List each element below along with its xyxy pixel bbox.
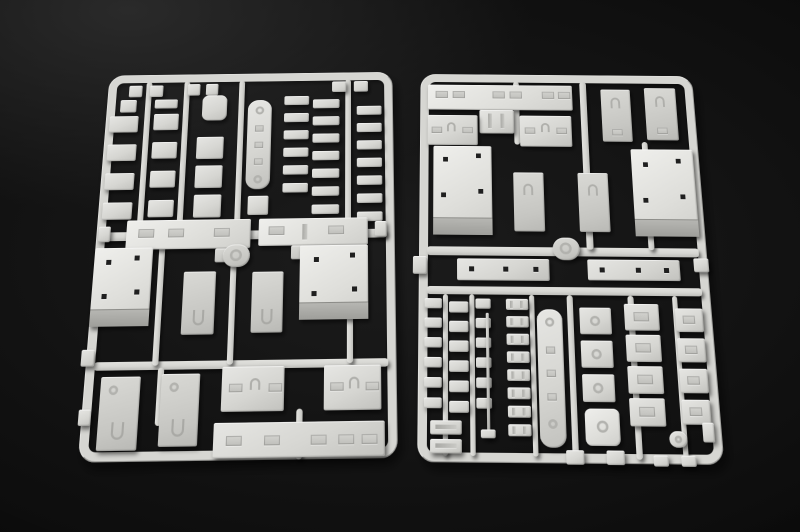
big-box-part	[299, 245, 368, 320]
part-detail-pad	[547, 370, 557, 378]
small-plate-part	[104, 173, 135, 190]
small-box-part	[247, 196, 268, 215]
part-detail-pad	[637, 375, 653, 385]
l-bracket-part	[120, 100, 137, 113]
comb-bracket	[313, 116, 340, 125]
tool-part	[155, 99, 178, 108]
small-bar-part	[284, 130, 309, 139]
part-detail-slot	[511, 371, 514, 378]
foot-clip	[653, 455, 669, 466]
part-detail-pad	[268, 226, 284, 235]
comb-bracket	[312, 133, 339, 143]
part-detail-arch	[588, 184, 598, 195]
sprue-left	[78, 72, 398, 463]
part-detail-pad	[268, 383, 282, 392]
lug-part	[506, 316, 529, 328]
ladder-strip-part	[245, 100, 272, 189]
small-bar-part	[283, 147, 308, 157]
dial-box-part	[581, 340, 614, 368]
part-detail-slot	[435, 443, 456, 448]
small-plate-part	[109, 116, 139, 133]
part-detail-slot	[521, 336, 524, 343]
lug-part	[506, 334, 529, 346]
part-side-face	[635, 219, 700, 237]
hanger-bracket	[449, 401, 469, 413]
big-box-part	[433, 146, 493, 235]
part-detail-hole	[311, 291, 316, 296]
part-detail-circ	[169, 382, 179, 392]
part-detail-slot	[488, 114, 492, 128]
part-detail-slot	[512, 408, 515, 416]
ladder-strip-part	[537, 309, 567, 448]
part-detail-pad	[254, 142, 263, 149]
part-detail-arch	[349, 377, 359, 389]
part-detail-pad	[338, 434, 354, 444]
hanger-bracket	[424, 377, 442, 388]
part-detail-hole	[533, 267, 538, 272]
top-clip	[206, 84, 219, 96]
part-detail-slot	[511, 353, 514, 360]
comb-bracket	[312, 168, 339, 178]
part-detail-hole	[600, 267, 605, 272]
hatch-panel-part	[577, 173, 610, 232]
plate-part	[428, 115, 478, 145]
lug-part	[506, 299, 529, 310]
part-detail-pad	[633, 312, 649, 321]
edge-clip	[413, 256, 427, 274]
part-detail-hole	[680, 194, 685, 199]
shackle-panel-part	[181, 271, 217, 335]
part-detail-pad	[254, 158, 263, 165]
foot-clip	[681, 456, 697, 467]
sprue-right	[417, 74, 724, 465]
comb-bracket	[357, 123, 382, 132]
comb-bracket	[312, 186, 340, 196]
hanger-bracket	[424, 357, 442, 368]
part-detail-hole	[106, 260, 111, 265]
photo-description: Photograph of two light-gray injection-m…	[0, 0, 1, 1]
edge-clip	[80, 350, 95, 367]
part-detail-hole	[443, 157, 448, 162]
part-detail-slot	[521, 354, 524, 361]
lug-part	[507, 369, 530, 381]
hatch-panel-part	[644, 88, 679, 140]
part-detail-hole	[476, 153, 481, 158]
part-detail-circ	[560, 242, 572, 254]
hook-part	[702, 423, 715, 443]
long-plate-part	[457, 258, 550, 281]
clamp-part	[430, 420, 462, 435]
part-detail-pad	[362, 434, 378, 444]
big-box-part	[89, 247, 153, 326]
part-detail-hole	[350, 253, 355, 258]
part-detail-slot	[522, 371, 525, 378]
pad-box-part	[681, 400, 711, 425]
part-detail-hole	[441, 192, 446, 197]
hatch-panel-part	[600, 90, 633, 142]
comb-bracket	[357, 106, 382, 115]
part-detail-pad	[311, 435, 327, 445]
part-detail-circ	[593, 383, 604, 394]
small-plate-part	[106, 144, 136, 161]
part-detail-pad	[492, 91, 504, 98]
comb-bracket	[313, 99, 340, 108]
part-detail-slot	[510, 318, 513, 325]
part-detail-hole	[503, 267, 508, 272]
lug-part	[508, 406, 531, 418]
part-detail-slot	[523, 408, 526, 416]
stepped-plate-part	[258, 217, 368, 246]
part-detail-slot	[510, 301, 513, 308]
top-clip	[354, 81, 368, 92]
part-detail-u	[261, 309, 273, 325]
small-plate-part	[153, 114, 179, 131]
part-detail-arch	[447, 122, 456, 131]
small-plate-part	[151, 142, 177, 159]
big-box-part	[630, 149, 699, 237]
hanger-bracket	[449, 380, 469, 392]
part-detail-hole	[134, 256, 139, 261]
comb-bracket	[311, 204, 339, 214]
part-detail-circ	[548, 419, 558, 429]
hanger-bracket	[449, 360, 469, 372]
part-detail-circ	[255, 106, 264, 114]
hanger-bracket	[449, 340, 469, 352]
hanger-bracket	[475, 298, 490, 308]
comb-bracket	[357, 158, 382, 168]
part-detail-circ	[230, 249, 242, 261]
part-detail-pad	[689, 407, 702, 416]
clamp-part	[430, 439, 462, 454]
sprue-runner	[345, 79, 351, 231]
part-detail-slot	[511, 336, 514, 343]
part-detail-hole	[478, 189, 483, 194]
hanger-bracket	[424, 397, 442, 408]
rounded-box-part	[584, 408, 621, 446]
part-detail-hole	[352, 286, 357, 291]
part-detail-pad	[226, 436, 242, 446]
part-detail-slot	[520, 318, 523, 325]
part-detail-pad	[612, 129, 623, 135]
part-detail-slot	[302, 224, 307, 240]
small-bar-part	[283, 165, 308, 175]
top-clip	[150, 85, 164, 97]
part-detail-hole	[134, 289, 139, 294]
part-detail-pad	[682, 316, 695, 324]
part-detail-hole	[636, 268, 641, 273]
part-detail-pad	[556, 128, 567, 134]
part-detail-pad	[229, 384, 243, 393]
pad-box-part	[624, 304, 660, 331]
small-bar-part	[284, 113, 309, 122]
small-bar-part	[284, 96, 309, 105]
square-hatch-part	[196, 137, 224, 159]
part-side-face	[433, 217, 493, 235]
part-detail-pad	[138, 229, 154, 238]
edge-clip	[78, 409, 92, 426]
part-detail-u	[192, 310, 204, 326]
part-detail-pad	[546, 346, 556, 353]
small-plate-part	[147, 200, 174, 218]
part-detail-pad	[542, 92, 555, 99]
part-detail-arch	[610, 98, 620, 109]
small-plate-part	[149, 171, 175, 188]
part-detail-arch	[523, 184, 533, 195]
dial-box-part	[582, 374, 616, 402]
top-clip	[129, 86, 143, 98]
wide-panel-part	[221, 366, 285, 412]
pad-box-part	[677, 338, 707, 362]
part-detail-hole	[664, 268, 669, 273]
hanger-bracket	[449, 321, 468, 333]
lug-part	[508, 424, 532, 436]
part-detail-pad	[558, 92, 571, 99]
top-clip	[188, 84, 201, 96]
part-detail-hole	[314, 257, 319, 262]
part-detail-hole	[643, 162, 648, 167]
small-bar-part	[282, 183, 308, 193]
part-side-face	[89, 309, 150, 327]
part-detail-circ	[108, 385, 118, 395]
shackle-panel-part	[158, 374, 201, 447]
part-detail-slot	[512, 426, 515, 434]
long-plate-part	[587, 259, 681, 281]
part-detail-arch	[250, 378, 261, 390]
lug-part	[507, 351, 530, 363]
part-detail-pad	[509, 91, 521, 98]
part-detail-pad	[436, 91, 448, 98]
part-detail-hole	[101, 294, 106, 299]
pad-box-part	[627, 366, 664, 394]
part-detail-slot	[435, 425, 456, 430]
part-detail-pad	[685, 346, 698, 354]
part-detail-pad	[547, 393, 557, 401]
small-plate-part	[102, 202, 133, 220]
pulley-part	[669, 431, 688, 448]
part-detail-slot	[500, 114, 504, 128]
dial-box-part	[579, 308, 612, 335]
comb-bracket	[357, 140, 382, 150]
part-detail-pad	[453, 91, 465, 98]
part-detail-pad	[432, 127, 443, 133]
comb-bracket	[312, 151, 339, 161]
part-detail-circ	[591, 349, 602, 360]
part-detail-pad	[687, 376, 700, 385]
part-detail-circ	[545, 317, 554, 326]
part-detail-slot	[522, 390, 525, 398]
part-detail-arch	[541, 123, 550, 132]
part-detail-pad	[657, 128, 668, 134]
part-detail-u	[171, 419, 185, 437]
t-clip	[606, 450, 625, 465]
square-hatch-part	[194, 165, 222, 188]
t-bracket-part	[479, 110, 514, 134]
part-detail-u	[110, 422, 124, 440]
edge-clip	[375, 221, 387, 237]
part-detail-pad	[525, 127, 536, 133]
part-detail-pad	[255, 125, 264, 131]
part-detail-slot	[520, 301, 523, 308]
rounded-hatch-part	[202, 95, 228, 120]
hatch-panel-part	[513, 172, 545, 231]
hanger-bracket	[425, 298, 442, 308]
pad-box-part	[625, 335, 662, 362]
part-detail-pad	[639, 407, 655, 417]
plate-part	[520, 116, 573, 147]
pad-box-part	[629, 398, 666, 427]
part-detail-pad	[635, 343, 651, 353]
part-detail-hole	[676, 159, 681, 164]
part-detail-hole	[643, 198, 648, 203]
wide-panel-part	[324, 365, 382, 411]
part-detail-circ	[590, 316, 601, 326]
molding-disc	[552, 238, 580, 261]
part-detail-pad	[264, 435, 280, 445]
top-clip	[332, 81, 346, 92]
comb-bracket	[357, 193, 383, 203]
shackle-panel-part	[96, 376, 141, 451]
part-detail-slot	[523, 426, 526, 434]
part-detail-circ	[253, 175, 262, 184]
lug-part	[507, 387, 530, 399]
t-clip	[566, 450, 585, 465]
comb-bracket	[357, 175, 382, 185]
part-detail-pad	[328, 225, 344, 234]
part-detail-pad	[168, 229, 184, 238]
pad-box-part	[675, 308, 704, 332]
pad-box-part	[679, 369, 709, 394]
shackle-panel-part	[250, 271, 283, 332]
photo-stage: Photograph of two light-gray injection-m…	[0, 0, 800, 532]
square-hatch-part	[193, 194, 222, 217]
part-detail-arch	[655, 96, 665, 107]
part-detail-circ	[674, 436, 682, 444]
part-detail-circ	[597, 421, 609, 433]
edge-clip	[693, 258, 709, 272]
hanger-bracket	[425, 317, 442, 327]
part-detail-pad	[330, 382, 344, 391]
part-detail-slot	[512, 389, 515, 397]
edge-clip	[98, 227, 111, 243]
long-plate-part	[428, 85, 573, 111]
rod-handle	[481, 429, 496, 438]
long-strip-part	[212, 421, 385, 459]
hanger-bracket	[424, 337, 442, 348]
part-detail-pad	[214, 228, 230, 237]
part-detail-pad	[366, 382, 380, 391]
part-detail-hole	[469, 266, 474, 271]
hanger-bracket	[449, 301, 468, 312]
part-detail-pad	[462, 127, 473, 133]
part-side-face	[299, 301, 368, 319]
